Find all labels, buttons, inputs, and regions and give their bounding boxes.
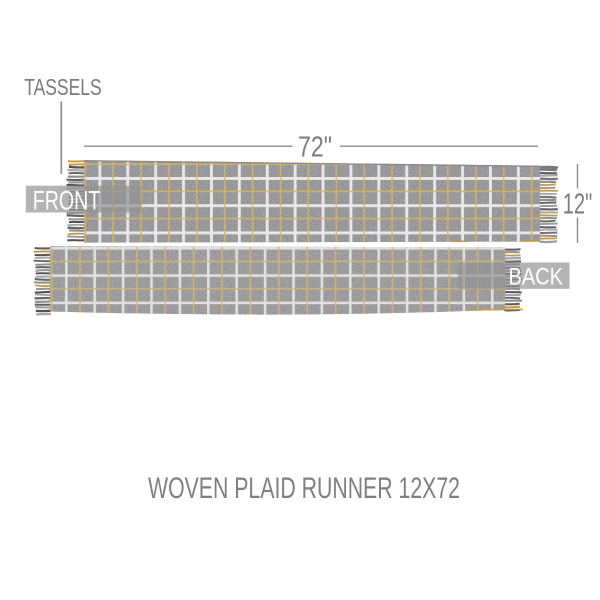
svg-text:WOVEN PLAID RUNNER 12X72: WOVEN PLAID RUNNER 12X72	[148, 472, 460, 505]
svg-text:FRONT: FRONT	[33, 185, 101, 215]
svg-text:BACK: BACK	[509, 263, 564, 290]
svg-text:72": 72"	[298, 131, 332, 163]
svg-text:12": 12"	[563, 189, 593, 221]
svg-text:TASSELS: TASSELS	[24, 74, 102, 100]
